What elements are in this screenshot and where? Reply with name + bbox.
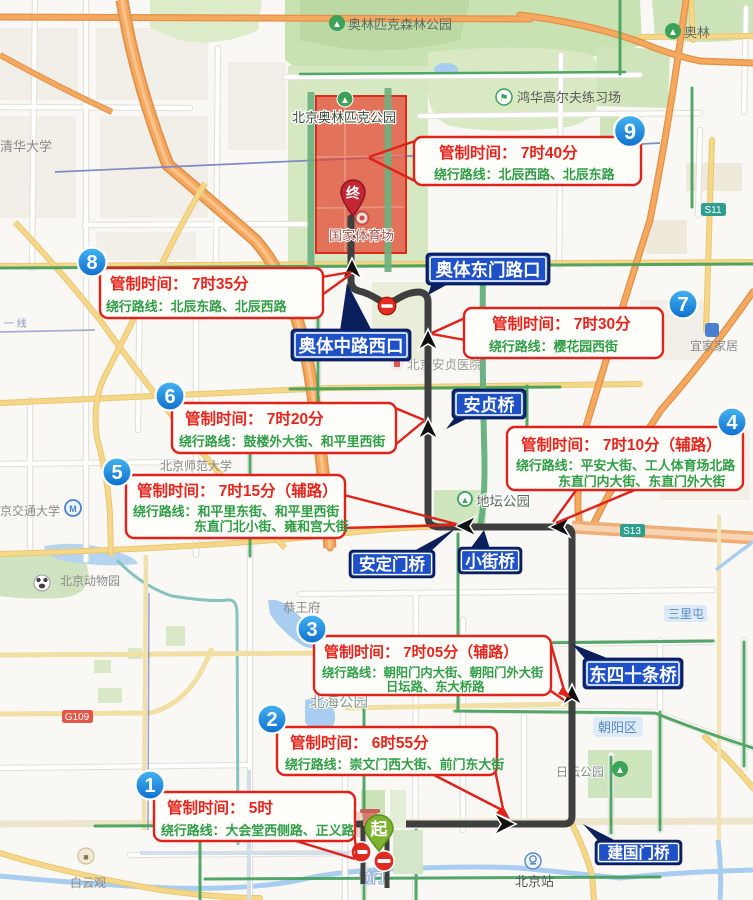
- svg-text:管制时间： 7时15分（辅路）: 管制时间： 7时15分（辅路）: [137, 481, 338, 500]
- svg-text:管制时间： 7时40分: 管制时间： 7时40分: [439, 143, 578, 162]
- svg-text:绕行路线：平安大街、工人体育场北路: 绕行路线：平安大街、工人体育场北路: [516, 458, 735, 473]
- svg-text:北海公园: 北海公园: [310, 694, 368, 711]
- svg-text:一 线: 一 线: [4, 317, 27, 330]
- svg-text:绕行路线：和平里东街、和平里西街: 绕行路线：和平里东街、和平里西街: [133, 504, 339, 519]
- svg-text:北京安贞医院: 北京安贞医院: [407, 357, 483, 372]
- svg-text:▲: ▲: [332, 19, 342, 30]
- svg-text:地坛公园: 地坛公园: [476, 494, 530, 509]
- svg-text:奥体东门路口: 奥体东门路口: [436, 260, 541, 280]
- svg-text:建国门桥: 建国门桥: [607, 843, 670, 862]
- svg-text:绕行路线：鼓楼外大街、和平里西街: 绕行路线：鼓楼外大街、和平里西街: [179, 434, 385, 449]
- svg-text:绕行路线：崇文门西大街、前门东大街: 绕行路线：崇文门西大街、前门东大街: [285, 757, 504, 772]
- svg-text:管制时间： 7时30分: 管制时间： 7时30分: [492, 314, 631, 333]
- svg-text:安定门桥: 安定门桥: [359, 554, 426, 574]
- svg-text:鸿华高尔夫练习场: 鸿华高尔夫练习场: [517, 90, 621, 105]
- svg-text:安贞桥: 安贞桥: [464, 395, 516, 415]
- svg-text:绕行路线：北辰西路、北辰东路: 绕行路线：北辰西路、北辰东路: [434, 167, 615, 182]
- svg-text:3: 3: [306, 619, 317, 641]
- svg-text:北京交通大学: 北京交通大学: [0, 503, 60, 518]
- svg-text:管制时间： 7时20分: 管制时间： 7时20分: [185, 409, 324, 428]
- svg-text:东四十条桥: 东四十条桥: [589, 665, 677, 685]
- svg-text:S11: S11: [704, 205, 721, 216]
- svg-text:奥林: 奥林: [684, 25, 710, 40]
- svg-text:北京站: 北京站: [515, 874, 554, 889]
- svg-text:5: 5: [111, 462, 122, 484]
- svg-text:国家体育场: 国家体育场: [329, 228, 394, 243]
- svg-text:北京师范大学: 北京师范大学: [160, 458, 232, 473]
- svg-text:1: 1: [144, 775, 155, 797]
- svg-text:白云观: 白云观: [70, 875, 106, 890]
- svg-text:终: 终: [346, 185, 361, 201]
- svg-text:8: 8: [86, 252, 97, 274]
- svg-text:东直门内大街、东直门外大街: 东直门内大街、东直门外大街: [558, 474, 726, 489]
- svg-text:管制时间： 5时: 管制时间： 5时: [167, 798, 273, 817]
- svg-text:4: 4: [726, 412, 738, 434]
- svg-text:北京动物园: 北京动物园: [60, 574, 120, 588]
- svg-text:绕行路线：朝阳门内大街、朝阳门外大街: 绕行路线：朝阳门内大街、朝阳门外大街: [322, 665, 544, 680]
- svg-text:恭王府: 恭王府: [283, 600, 321, 615]
- svg-text:管制时间： 6时55分: 管制时间： 6时55分: [290, 733, 429, 752]
- svg-text:绕行路线：大会堂西侧路、正义路: 绕行路线：大会堂西侧路、正义路: [161, 823, 354, 838]
- svg-text:宜家家居: 宜家家居: [690, 338, 738, 353]
- svg-text:■: ■: [83, 852, 88, 862]
- svg-text:小街桥: 小街桥: [465, 551, 515, 571]
- svg-text:M: M: [69, 504, 77, 514]
- svg-text:▲: ▲: [340, 95, 350, 106]
- svg-text:绕行路线：樱花园西街: 绕行路线：樱花园西街: [489, 339, 618, 354]
- svg-text:G109: G109: [65, 712, 90, 723]
- svg-text:9: 9: [624, 119, 636, 144]
- svg-text:7: 7: [677, 294, 688, 316]
- svg-text:▲: ▲: [461, 495, 470, 505]
- svg-text:绕行路线：北辰东路、北辰西路: 绕行路线：北辰东路、北辰西路: [106, 299, 287, 314]
- svg-text:▲: ▲: [615, 765, 625, 776]
- svg-text:朝阳区: 朝阳区: [598, 720, 637, 735]
- svg-text:⚑: ⚑: [500, 93, 509, 104]
- svg-text:6: 6: [164, 386, 175, 408]
- svg-text:S13: S13: [623, 526, 641, 537]
- svg-text:北京奥林匹克公园: 北京奥林匹克公园: [292, 110, 396, 125]
- svg-text:清华大学: 清华大学: [0, 139, 52, 154]
- svg-text:起: 起: [370, 819, 389, 839]
- svg-text:2: 2: [266, 709, 277, 731]
- svg-text:东直门北小街、雍和宫大街: 东直门北小街、雍和宫大街: [194, 519, 349, 534]
- svg-text:管制时间： 7时35分: 管制时间： 7时35分: [110, 274, 249, 293]
- svg-text:日坛路、东大桥路: 日坛路、东大桥路: [386, 679, 485, 694]
- svg-text:奥体中路西口: 奥体中路西口: [299, 336, 404, 356]
- svg-text:▲: ▲: [668, 27, 678, 38]
- svg-text:管制时间： 7时10分（辅路）: 管制时间： 7时10分（辅路）: [521, 435, 722, 454]
- svg-text:三里屯: 三里屯: [668, 607, 704, 621]
- svg-text:管制时间： 7时05分（辅路）: 管制时间： 7时05分（辅路）: [324, 643, 518, 661]
- svg-text:奥林匹克森林公园: 奥林匹克森林公园: [348, 17, 452, 32]
- svg-text:日坛公园: 日坛公园: [556, 765, 604, 779]
